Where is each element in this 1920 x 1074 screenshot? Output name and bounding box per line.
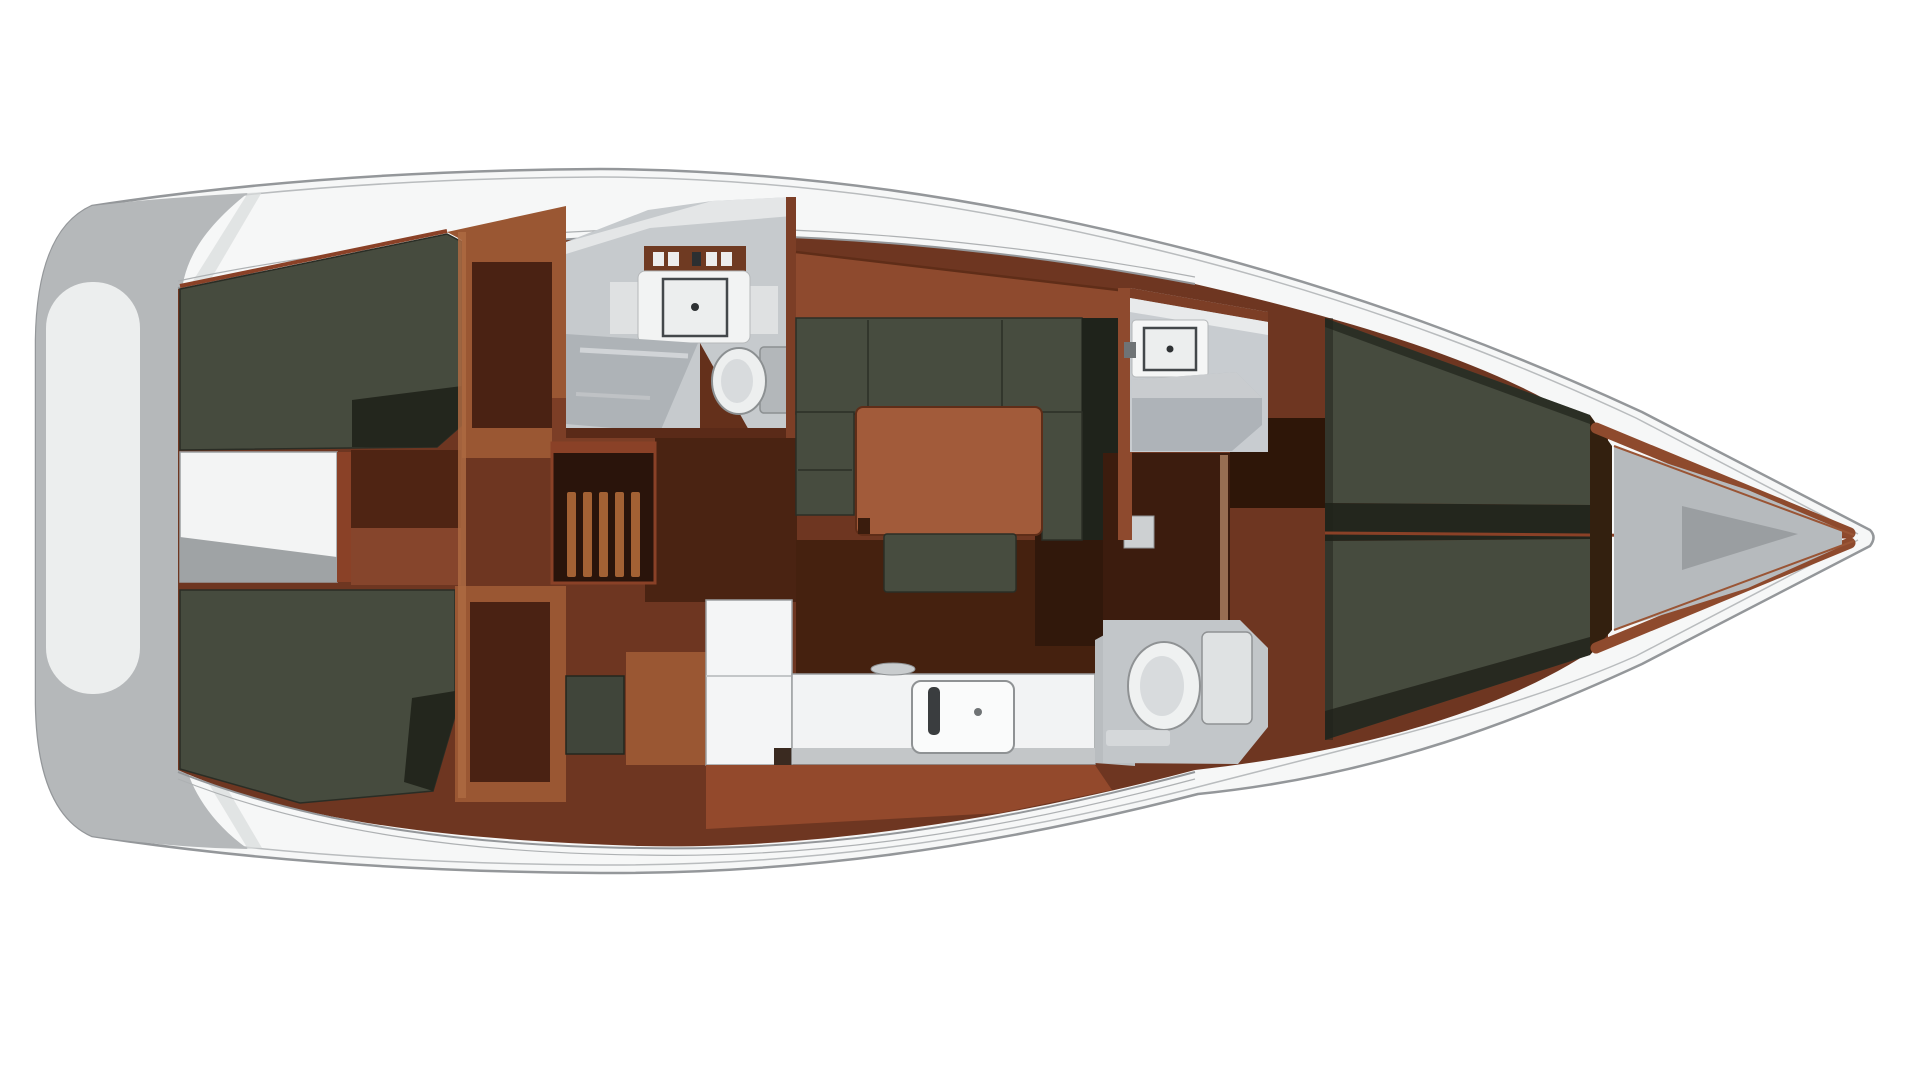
stair-slat-4 — [615, 492, 624, 577]
transom-highlight — [46, 282, 140, 694]
midhead-sink-drain — [691, 303, 699, 311]
midhead-counter-left — [610, 282, 640, 334]
midhead-shelf-tile-4 — [721, 252, 732, 266]
midhead-aft-wall — [566, 428, 792, 438]
midhead-shelf-tile-1 — [653, 252, 664, 266]
salon-floor-shadow — [645, 432, 797, 602]
midhead-shelf-tile-3 — [706, 252, 717, 266]
boat-floorplan-page — [0, 0, 1920, 1074]
vberth-footboard — [1590, 415, 1612, 655]
fwdhead-tap — [1124, 342, 1136, 358]
afthead-toilet-seat — [1140, 656, 1184, 716]
salon-table — [856, 407, 1042, 535]
galley-fridge-notch — [774, 748, 792, 765]
bulkhead-frame — [458, 232, 466, 798]
salon-fwd-wall — [786, 197, 796, 438]
settee-arm-left — [796, 412, 854, 515]
midhead-counter-right — [750, 286, 778, 334]
vberth-head-edge — [1325, 318, 1333, 740]
galley-pot — [871, 663, 915, 675]
stair-slat-1 — [567, 492, 576, 577]
midhead-shelf-tile-2 — [668, 252, 679, 266]
aft-cabin-door-stbd — [472, 262, 552, 428]
aft-cabin-door-port — [470, 602, 550, 782]
stair-slat-3 — [599, 492, 608, 577]
galley-cabinet-left — [626, 652, 706, 765]
galley-sink-drain — [974, 708, 982, 716]
midhead-toilet-seat — [721, 359, 753, 403]
midship-locker-dark — [351, 450, 461, 528]
nav-seat — [566, 676, 624, 754]
salon-bench — [884, 534, 1016, 592]
galley-fridge — [706, 600, 792, 765]
boat-floorplan-figure — [0, 0, 1920, 1074]
midhead-shelf-tile-dark — [692, 252, 701, 266]
midship-locker-light — [351, 528, 461, 585]
afthead-toilet-tank — [1202, 632, 1252, 724]
afthead-mat — [1106, 730, 1170, 746]
galley-faucet — [928, 687, 940, 735]
settee-back — [796, 318, 1082, 414]
stairs-top-rail — [552, 443, 655, 453]
boat-floorplan-svg — [0, 0, 1920, 1074]
salon-table-leg — [858, 518, 870, 534]
engine-box-trim — [337, 452, 351, 582]
galley-sink — [912, 681, 1014, 753]
fwdcabin-door-frame — [1220, 455, 1228, 620]
fwdhead-sink-drain — [1167, 346, 1174, 353]
fwdhead-divider — [1118, 288, 1132, 540]
settee-arm-right — [1042, 412, 1082, 540]
stair-slat-5 — [631, 492, 640, 577]
stair-slat-2 — [583, 492, 592, 577]
